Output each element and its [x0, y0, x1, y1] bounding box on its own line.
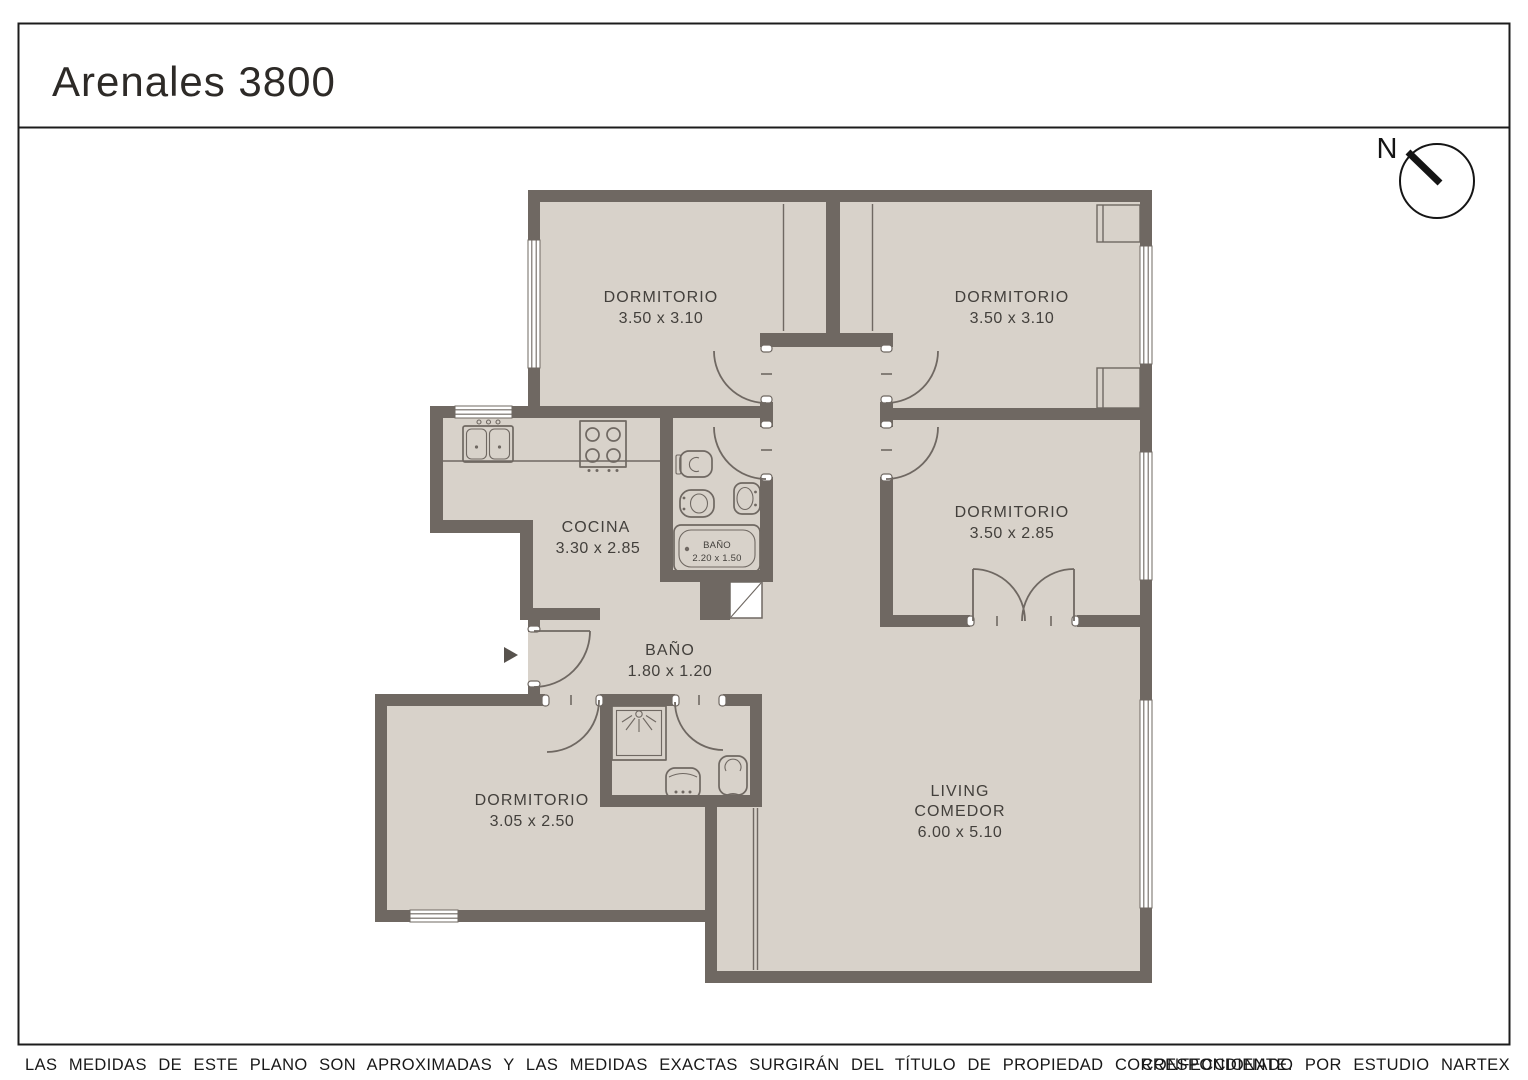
door-jamb — [761, 396, 772, 403]
window-living — [1140, 700, 1152, 908]
air-shaft — [730, 582, 762, 618]
floor — [970, 615, 1077, 627]
floorplan-sheet: Arenales 3800 N — [0, 0, 1528, 1080]
room-label-bedroom2: DORMITORIO — [955, 289, 1070, 306]
wall — [705, 807, 717, 983]
room-label-bathroom-small: BAÑO — [703, 540, 731, 551]
door-jamb — [542, 695, 549, 706]
wall — [880, 408, 1152, 420]
entry-arrow-icon — [504, 647, 518, 663]
door-jamb — [761, 474, 772, 481]
wall — [520, 520, 533, 620]
floor — [760, 347, 880, 620]
footer-credit: CONFECCIONADO POR ESTUDIO NARTEX — [1142, 1056, 1510, 1074]
door-jamb — [719, 695, 726, 706]
wall — [880, 615, 970, 627]
window-bedroom4 — [410, 910, 458, 922]
compass-icon: N — [1377, 133, 1474, 218]
room-dims-bedroom3: 3.50 x 2.85 — [970, 525, 1055, 542]
wall — [750, 694, 762, 807]
page-title: Arenales 3800 — [52, 58, 336, 105]
wall — [660, 418, 673, 570]
wall — [1140, 202, 1152, 246]
room-dims-bedroom1: 3.50 x 3.10 — [619, 310, 704, 327]
door-jamb — [761, 345, 772, 352]
door-jamb — [1072, 616, 1079, 626]
floor — [705, 620, 1140, 971]
window-bedroom2 — [1140, 246, 1152, 364]
wall — [530, 190, 1152, 202]
room-dims-bedroom2: 3.50 x 3.10 — [970, 310, 1055, 327]
room-label-bathroom-hall: BAÑO — [645, 639, 695, 659]
wall — [430, 406, 443, 530]
wall — [705, 971, 1152, 983]
wall — [700, 582, 730, 620]
wall — [760, 333, 893, 347]
wall — [600, 706, 612, 807]
wall — [375, 910, 410, 922]
room-label-bedroom1: DORMITORIO — [604, 289, 719, 306]
room-label-bedroom3: DORMITORIO — [955, 504, 1070, 521]
door-jamb — [881, 421, 892, 428]
floor — [528, 632, 540, 683]
window-kitchen — [455, 406, 512, 418]
compass-north-label: N — [1377, 133, 1398, 165]
wall — [1077, 615, 1152, 627]
wall — [600, 795, 762, 807]
door-jamb — [881, 474, 892, 481]
wall — [458, 910, 717, 922]
room-label-living-line1: LIVING — [930, 783, 989, 800]
room-dims-kitchen: 3.30 x 2.85 — [556, 540, 641, 557]
wall — [375, 694, 387, 922]
wall — [528, 190, 540, 248]
wall — [880, 477, 893, 620]
wall — [760, 477, 773, 582]
wall — [600, 694, 675, 706]
wall — [1140, 580, 1152, 700]
wall — [430, 520, 520, 533]
footer-disclaimer: LAS MEDIDAS DE ESTE PLANO SON APROXIMADA… — [25, 1055, 1293, 1074]
floor — [443, 418, 660, 520]
door-jamb — [881, 345, 892, 352]
room-dims-bedroom4: 3.05 x 2.50 — [490, 813, 575, 830]
window-bedroom3 — [1140, 452, 1152, 580]
room-label-living-line2: COMEDOR — [914, 803, 1005, 820]
room-dims-living: 6.00 x 5.10 — [918, 824, 1003, 841]
wall — [826, 202, 840, 347]
room-dims-bathroom-small: 2.20 x 1.50 — [692, 553, 741, 564]
floorplan-drawing: Arenales 3800 N — [0, 0, 1528, 1080]
room-dims-bathroom-hall: 1.80 x 1.20 — [628, 663, 713, 680]
wall — [375, 694, 545, 706]
room-label-bedroom4: DORMITORIO — [475, 792, 590, 809]
wall — [520, 608, 600, 620]
door-jamb — [761, 421, 772, 428]
room-label-kitchen: COCINA — [562, 519, 631, 536]
window-bedroom1 — [528, 240, 540, 368]
